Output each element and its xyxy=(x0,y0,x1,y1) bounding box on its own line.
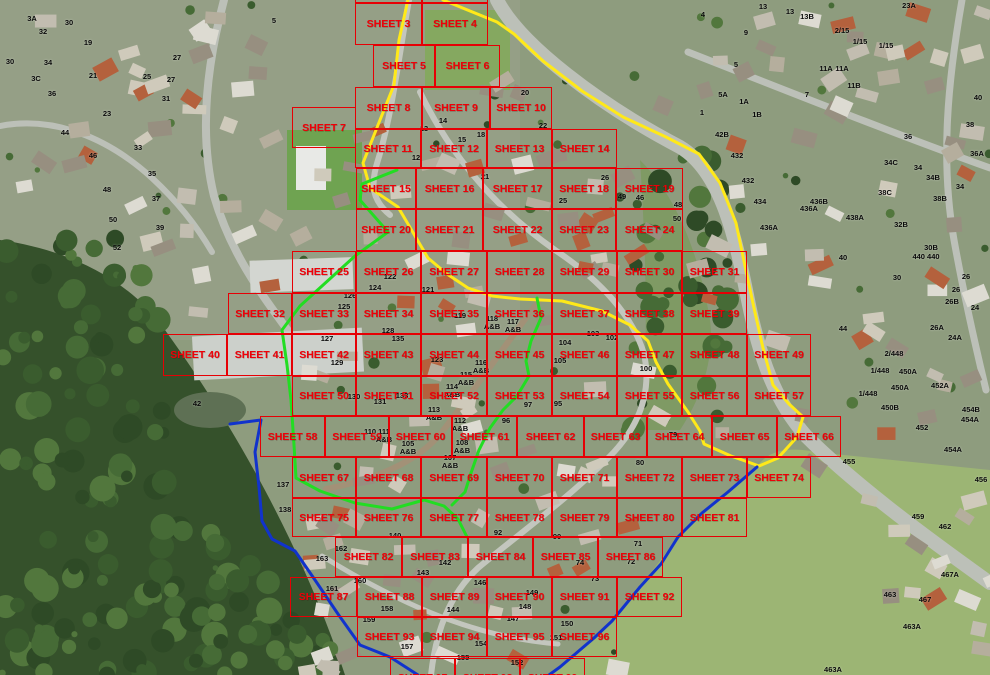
sheet-label: SHEET 53 xyxy=(495,390,545,402)
sheet-label: SHEET 18 xyxy=(559,183,609,195)
sheet-label: SHEET 81 xyxy=(690,512,740,524)
sheet-label: SHEET 10 xyxy=(496,102,546,114)
sheet-label: SHEET 80 xyxy=(625,512,675,524)
sheet-box[interactable]: SHEET 22 xyxy=(483,209,552,251)
sheet-box[interactable]: SHEET 54 xyxy=(552,376,617,416)
sheet-box[interactable]: SHEET 34 xyxy=(356,293,421,334)
sheet-box[interactable]: SHEET 30 xyxy=(617,251,682,293)
sheet-box[interactable]: SHEET 36 xyxy=(487,293,552,334)
sheet-label: SHEET 95 xyxy=(495,631,545,643)
sheet-label: SHEET 4 xyxy=(433,18,477,30)
sheet-label: SHEET 5 xyxy=(382,60,426,72)
sheet-box[interactable]: SHEET 46 xyxy=(552,334,617,376)
sheet-box[interactable]: SHEET 11 xyxy=(355,129,421,168)
sheet-box[interactable]: SHEET 56 xyxy=(682,376,747,416)
sheet-box[interactable]: SHEET 76 xyxy=(356,498,421,537)
sheet-label: SHEET 57 xyxy=(754,390,804,402)
sheet-label: SHEET 48 xyxy=(690,349,740,361)
sheet-box[interactable]: SHEET 55 xyxy=(617,376,682,416)
sheet-box[interactable]: SHEET 35 xyxy=(421,293,487,334)
sheet-label: SHEET 12 xyxy=(429,143,479,155)
sheet-box[interactable]: SHEET 99 xyxy=(520,658,585,675)
sheet-box[interactable]: SHEET 62 xyxy=(517,416,584,457)
sheet-label: SHEET 3 xyxy=(367,18,411,30)
sheet-box[interactable]: SHEET 10 xyxy=(490,87,552,129)
sheet-label: SHEET 25 xyxy=(299,266,349,278)
sheet-label: SHEET 94 xyxy=(430,631,480,643)
sheet-box[interactable]: SHEET 64 xyxy=(647,416,712,457)
sheet-box[interactable]: SHEET 4 xyxy=(422,3,488,45)
sheet-label: SHEET 41 xyxy=(235,349,285,361)
sheet-label: SHEET 93 xyxy=(365,631,415,643)
sheet-box[interactable]: SHEET 97 xyxy=(390,658,455,675)
sheet-label: SHEET 24 xyxy=(625,224,675,236)
sheet-box[interactable]: SHEET 20 xyxy=(356,209,416,251)
sheet-label: SHEET 27 xyxy=(429,266,479,278)
sheet-box[interactable]: SHEET 86 xyxy=(598,537,663,577)
sheet-label: SHEET 70 xyxy=(495,472,545,484)
sheet-box[interactable]: SHEET 15 xyxy=(356,168,416,209)
sheet-label: SHEET 61 xyxy=(460,431,510,443)
sheet-label: SHEET 59 xyxy=(332,431,382,443)
sheet-box[interactable]: SHEET 7 xyxy=(292,107,356,148)
sheet-box[interactable]: SHEET 21 xyxy=(416,209,483,251)
sheet-box[interactable]: SHEET 82 xyxy=(335,537,402,577)
sheet-box[interactable]: SHEET 90 xyxy=(487,577,552,617)
sheet-box[interactable]: SHEET 32 xyxy=(228,293,292,334)
sheet-label: SHEET 13 xyxy=(495,143,545,155)
sheet-box[interactable]: SHEET 87 xyxy=(290,577,357,617)
sheet-label: SHEET 32 xyxy=(235,308,285,320)
sheet-box[interactable]: SHEET 49 xyxy=(747,334,811,376)
sheet-box-partial[interactable] xyxy=(422,0,488,3)
sheet-label: SHEET 72 xyxy=(625,472,675,484)
sheet-label: SHEET 37 xyxy=(560,308,610,320)
sheet-label: SHEET 35 xyxy=(429,308,479,320)
sheet-box[interactable]: SHEET 6 xyxy=(435,45,500,87)
sheet-box[interactable]: SHEET 93 xyxy=(357,617,422,657)
sheet-label: SHEET 88 xyxy=(365,591,415,603)
sheet-box[interactable]: SHEET 26 xyxy=(356,251,421,293)
sheet-box[interactable]: SHEET 41 xyxy=(227,334,292,376)
sheet-label: SHEET 77 xyxy=(429,512,479,524)
sheet-label: SHEET 69 xyxy=(429,472,479,484)
sheet-label: SHEET 91 xyxy=(560,591,610,603)
sheet-label: SHEET 40 xyxy=(170,349,220,361)
sheet-label: SHEET 43 xyxy=(364,349,414,361)
sheet-label: SHEET 86 xyxy=(606,551,656,563)
sheet-label: SHEET 26 xyxy=(364,266,414,278)
sheet-box[interactable]: SHEET 5 xyxy=(373,45,435,87)
sheet-box[interactable]: SHEET 40 xyxy=(163,334,227,376)
sheet-box[interactable]: SHEET 63 xyxy=(584,416,647,457)
sheet-box[interactable]: SHEET 65 xyxy=(712,416,777,457)
sheet-box[interactable]: SHEET 27 xyxy=(421,251,487,293)
sheet-box[interactable]: SHEET 70 xyxy=(487,457,552,498)
sheet-index-map: 3A30532193430212527273C36312344334635483… xyxy=(0,0,990,675)
sheet-label: SHEET 45 xyxy=(495,349,545,361)
sheet-box[interactable]: SHEET 37 xyxy=(552,293,617,334)
sheet-box[interactable]: SHEET 78 xyxy=(487,498,552,537)
sheet-label: SHEET 39 xyxy=(690,308,740,320)
sheet-label: SHEET 68 xyxy=(364,472,414,484)
sheet-box[interactable]: SHEET 52 xyxy=(421,376,487,416)
sheet-label: SHEET 56 xyxy=(690,390,740,402)
sheet-label: SHEET 9 xyxy=(434,102,478,114)
sheet-box[interactable]: SHEET 12 xyxy=(421,129,487,168)
sheet-label: SHEET 6 xyxy=(446,60,490,72)
sheet-box[interactable]: SHEET 29 xyxy=(552,251,617,293)
sheet-box[interactable]: SHEET 3 xyxy=(355,3,422,45)
sheet-label: SHEET 62 xyxy=(526,431,576,443)
sheet-box[interactable]: SHEET 57 xyxy=(747,376,811,416)
sheet-label: SHEET 11 xyxy=(363,143,412,155)
sheet-label: SHEET 65 xyxy=(720,431,770,443)
sheet-box[interactable]: SHEET 74 xyxy=(747,457,811,498)
sheet-box[interactable]: SHEET 8 xyxy=(355,87,422,129)
sheet-box[interactable]: SHEET 31 xyxy=(682,251,747,293)
sheet-box[interactable]: SHEET 95 xyxy=(487,617,552,657)
sheet-box[interactable]: SHEET 33 xyxy=(292,293,356,334)
sheet-box[interactable]: SHEET 69 xyxy=(421,457,487,498)
sheet-box[interactable]: SHEET 42 xyxy=(292,334,356,376)
sheet-box[interactable]: SHEET 83 xyxy=(402,537,468,577)
sheet-label: SHEET 8 xyxy=(367,102,411,114)
sheet-box[interactable]: SHEET 14 xyxy=(552,129,617,168)
sheet-label: SHEET 31 xyxy=(690,266,740,278)
sheet-label: SHEET 47 xyxy=(625,349,675,361)
sheet-box[interactable]: SHEET 81 xyxy=(682,498,747,537)
sheet-label: SHEET 84 xyxy=(476,551,526,563)
sheet-box[interactable]: SHEET 16 xyxy=(416,168,483,209)
sheet-label: SHEET 85 xyxy=(541,551,591,563)
sheet-label: SHEET 46 xyxy=(560,349,610,361)
sheet-label: SHEET 63 xyxy=(591,431,641,443)
sheet-box[interactable]: SHEET 13 xyxy=(487,129,552,168)
sheet-label: SHEET 90 xyxy=(495,591,545,603)
sheet-box[interactable]: SHEET 51 xyxy=(356,376,421,416)
sheet-label: SHEET 55 xyxy=(625,390,675,402)
sheet-label: SHEET 20 xyxy=(361,224,411,236)
sheet-label: SHEET 60 xyxy=(396,431,446,443)
sheet-label: SHEET 51 xyxy=(364,390,414,402)
sheet-box-partial[interactable] xyxy=(355,0,422,3)
sheet-label: SHEET 7 xyxy=(302,122,346,134)
sheet-box[interactable]: SHEET 48 xyxy=(682,334,747,376)
sheet-box[interactable]: SHEET 25 xyxy=(292,251,356,293)
sheet-label: SHEET 92 xyxy=(625,591,675,603)
sheet-label: SHEET 50 xyxy=(299,390,349,402)
sheet-box[interactable]: SHEET 67 xyxy=(292,457,356,498)
sheet-label: SHEET 42 xyxy=(299,349,349,361)
sheet-box[interactable]: SHEET 92 xyxy=(617,577,682,617)
sheet-label: SHEET 49 xyxy=(754,349,804,361)
sheet-box[interactable]: SHEET 72 xyxy=(617,457,682,498)
sheet-label: SHEET 33 xyxy=(299,308,349,320)
sheet-box[interactable]: SHEET 39 xyxy=(682,293,747,334)
sheet-box[interactable]: SHEET 43 xyxy=(356,334,421,376)
sheet-label: SHEET 82 xyxy=(344,551,394,563)
sheet-label: SHEET 44 xyxy=(429,349,479,361)
sheet-box[interactable]: SHEET 96 xyxy=(552,617,617,657)
sheet-box[interactable]: SHEET 53 xyxy=(487,376,552,416)
sheet-label: SHEET 17 xyxy=(493,183,543,195)
sheet-label: SHEET 36 xyxy=(495,308,545,320)
sheet-label: SHEET 58 xyxy=(268,431,318,443)
sheet-box[interactable]: SHEET 59 xyxy=(325,416,389,457)
sheet-box[interactable]: SHEET 28 xyxy=(487,251,552,293)
sheet-label: SHEET 29 xyxy=(560,266,610,278)
sheet-label: SHEET 38 xyxy=(625,308,675,320)
sheet-label: SHEET 79 xyxy=(560,512,610,524)
sheet-label: SHEET 21 xyxy=(425,224,475,236)
sheet-label: SHEET 54 xyxy=(560,390,610,402)
sheet-label: SHEET 74 xyxy=(754,472,804,484)
sheet-label: SHEET 22 xyxy=(493,224,543,236)
sheet-box[interactable]: SHEET 19 xyxy=(616,168,683,209)
sheet-label: SHEET 73 xyxy=(690,472,740,484)
sheet-label: SHEET 64 xyxy=(655,431,705,443)
sheet-box[interactable]: SHEET 84 xyxy=(468,537,533,577)
sheet-label: SHEET 96 xyxy=(560,631,610,643)
sheet-box[interactable]: SHEET 24 xyxy=(616,209,683,251)
sheet-box[interactable]: SHEET 85 xyxy=(533,537,598,577)
sheet-label: SHEET 89 xyxy=(430,591,480,603)
sheet-label: SHEET 14 xyxy=(560,143,610,155)
sheet-label: SHEET 76 xyxy=(364,512,414,524)
sheet-box[interactable]: SHEET 9 xyxy=(422,87,490,129)
sheet-box[interactable]: SHEET 50 xyxy=(292,376,356,416)
sheet-box[interactable]: SHEET 79 xyxy=(552,498,617,537)
sheet-box[interactable]: SHEET 60 xyxy=(389,416,452,457)
sheet-label: SHEET 19 xyxy=(625,183,675,195)
sheet-box[interactable]: SHEET 18 xyxy=(552,168,616,209)
sheet-box[interactable]: SHEET 66 xyxy=(777,416,841,457)
sheet-box[interactable]: SHEET 44 xyxy=(421,334,487,376)
sheet-label: SHEET 67 xyxy=(299,472,349,484)
sheet-box[interactable]: SHEET 45 xyxy=(487,334,552,376)
sheet-box[interactable]: SHEET 94 xyxy=(422,617,487,657)
sheet-box[interactable]: SHEET 73 xyxy=(682,457,747,498)
sheet-box[interactable]: SHEET 38 xyxy=(617,293,682,334)
sheet-box[interactable]: SHEET 89 xyxy=(422,577,487,617)
sheet-box[interactable]: SHEET 75 xyxy=(292,498,356,537)
sheet-label: SHEET 83 xyxy=(410,551,460,563)
sheet-label: SHEET 78 xyxy=(495,512,545,524)
sheet-box[interactable]: SHEET 47 xyxy=(617,334,682,376)
sheet-box[interactable]: SHEET 17 xyxy=(483,168,552,209)
sheet-box[interactable]: SHEET 68 xyxy=(356,457,421,498)
sheet-box[interactable]: SHEET 88 xyxy=(357,577,422,617)
sheet-label: SHEET 28 xyxy=(495,266,545,278)
sheet-label: SHEET 15 xyxy=(361,183,411,195)
sheet-label: SHEET 30 xyxy=(625,266,675,278)
sheet-box[interactable]: SHEET 80 xyxy=(617,498,682,537)
sheet-box[interactable]: SHEET 61 xyxy=(452,416,517,457)
sheet-box[interactable]: SHEET 71 xyxy=(552,457,617,498)
sheet-box[interactable]: SHEET 98 xyxy=(455,658,520,675)
sheet-label: SHEET 66 xyxy=(784,431,834,443)
sheet-label: SHEET 16 xyxy=(425,183,475,195)
sheet-label: SHEET 71 xyxy=(560,472,610,484)
sheet-label: SHEET 52 xyxy=(429,390,479,402)
sheet-box[interactable]: SHEET 23 xyxy=(552,209,616,251)
sheet-label: SHEET 75 xyxy=(299,512,349,524)
sheet-label: SHEET 87 xyxy=(299,591,349,603)
sheet-label: SHEET 34 xyxy=(364,308,414,320)
sheet-label: SHEET 23 xyxy=(559,224,609,236)
sheet-box[interactable]: SHEET 91 xyxy=(552,577,617,617)
sheet-box[interactable]: SHEET 58 xyxy=(260,416,325,457)
sheet-box[interactable]: SHEET 77 xyxy=(421,498,487,537)
